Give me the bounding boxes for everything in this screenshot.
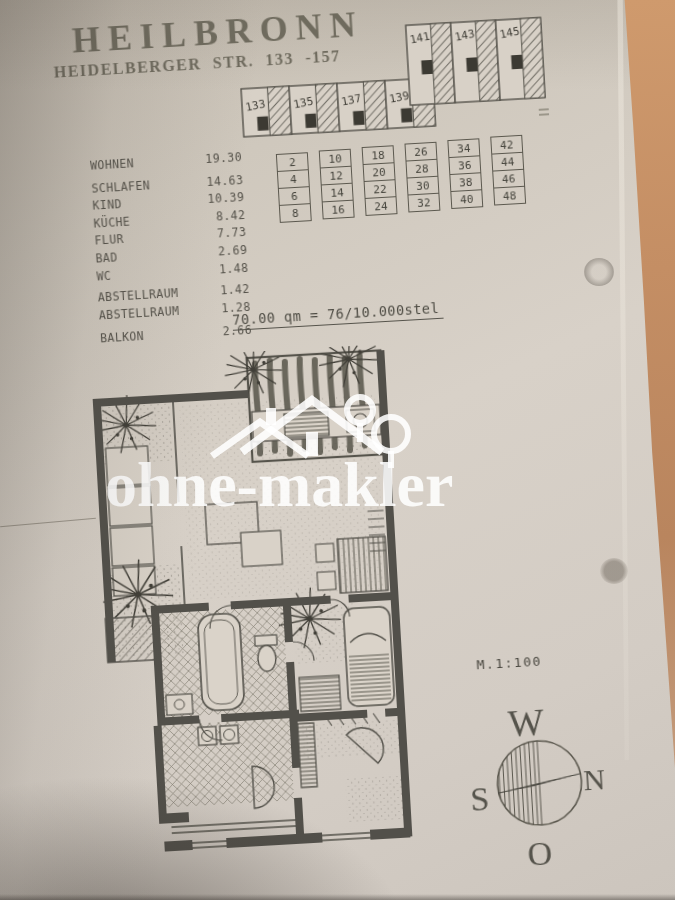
unit-number-cell: 30 bbox=[406, 177, 439, 196]
room-area-value: 7.73 bbox=[217, 225, 247, 244]
room-area-value: 10.39 bbox=[207, 190, 245, 210]
unit-number-cell: 42 bbox=[490, 135, 523, 155]
compass-west: W bbox=[507, 701, 545, 745]
unit-number-cell: 44 bbox=[491, 153, 524, 172]
room-area-value: 2.69 bbox=[218, 243, 248, 262]
unit-number-cell: 38 bbox=[449, 173, 482, 192]
unit-number-cell: 12 bbox=[320, 167, 353, 186]
chair bbox=[317, 571, 336, 590]
room-area-value: 19.30 bbox=[205, 150, 243, 170]
room-row: BALKON2.66 bbox=[100, 323, 253, 349]
kitchen bbox=[252, 404, 382, 457]
bathtub bbox=[197, 613, 244, 711]
room-label: ABSTELLRAUM bbox=[98, 304, 179, 326]
schematic-dash-marks bbox=[539, 109, 549, 115]
unit-number-cell: 6 bbox=[278, 187, 311, 206]
dining-table bbox=[337, 536, 388, 593]
room-label: WC bbox=[96, 268, 112, 286]
unit-column: 2468 bbox=[276, 152, 312, 223]
shelf bbox=[298, 723, 318, 788]
unit-number-cell: 4 bbox=[277, 170, 310, 189]
plant-icon bbox=[317, 343, 380, 389]
unit-column: 10121416 bbox=[319, 149, 355, 221]
unit-number-cell: 48 bbox=[493, 187, 526, 206]
room-row: WOHNEN19.30 bbox=[90, 150, 243, 176]
unit-column: 42444648 bbox=[490, 135, 526, 211]
unit-number-cell: 8 bbox=[279, 204, 312, 223]
unit-number-cell: 46 bbox=[492, 170, 525, 189]
unit-number-cell: 18 bbox=[362, 145, 395, 165]
unit-number-cell: 26 bbox=[404, 142, 437, 162]
room-label: SCHLAFEN bbox=[91, 178, 151, 199]
compass-north: N bbox=[582, 762, 606, 796]
washer bbox=[198, 726, 217, 745]
paper-content: HEILBRONN HEIDELBERGER STR. 133 -157 133… bbox=[0, 0, 675, 900]
unit-column: 18202224 bbox=[362, 145, 398, 218]
unit-number-cell: 28 bbox=[406, 160, 439, 179]
unit-column: 34363840 bbox=[447, 138, 483, 213]
unit-number-cell: 2 bbox=[276, 152, 309, 172]
unit-number-cell: 20 bbox=[363, 163, 396, 182]
room-area-list: WOHNEN19.30SCHLAFEN14.63KIND10.39KÜCHE8.… bbox=[90, 150, 253, 349]
unit-number-cell: 24 bbox=[365, 197, 398, 216]
unit-number-cell: 40 bbox=[450, 190, 483, 209]
compass-rose: W N S O bbox=[462, 683, 622, 873]
chair bbox=[315, 543, 334, 562]
unit-number-cell: 16 bbox=[322, 201, 355, 220]
schematic-lower-row: 133135137139 bbox=[241, 78, 435, 137]
building-schematic: 133135137139 141143145 bbox=[236, 13, 554, 145]
bathroom bbox=[159, 606, 289, 717]
room-area-value: 1.48 bbox=[219, 260, 249, 279]
stove bbox=[284, 411, 329, 437]
hallway bbox=[162, 718, 295, 807]
unit-number-cell: 32 bbox=[407, 194, 440, 213]
wardrobe bbox=[299, 675, 341, 711]
room-label: KÜCHE bbox=[93, 214, 131, 234]
room-label: KIND bbox=[92, 197, 122, 216]
room-label: BALKON bbox=[100, 329, 145, 349]
washbasin bbox=[166, 694, 193, 715]
room-area-value: 1.42 bbox=[220, 282, 250, 301]
room-label: BAD bbox=[95, 250, 118, 269]
unit-column: 26283032 bbox=[404, 142, 440, 216]
floor-plan bbox=[80, 343, 441, 866]
scale-label: M.1:100 bbox=[476, 654, 542, 673]
unit-number-cell: 34 bbox=[447, 138, 480, 158]
unit-number-cell: 14 bbox=[321, 184, 354, 203]
compass-south: S bbox=[469, 780, 490, 818]
room-label: FLUR bbox=[94, 232, 124, 251]
schematic-upper-row: 141143145 bbox=[406, 18, 545, 106]
room-label: WOHNEN bbox=[90, 156, 135, 176]
unit-number-cell: 36 bbox=[448, 156, 481, 175]
room-area-value: 8.42 bbox=[216, 208, 246, 227]
unit-number-cell: 10 bbox=[319, 149, 352, 169]
room-area-value: 14.63 bbox=[206, 173, 244, 193]
unit-number-grid: 2468101214161820222426283032343638404244… bbox=[276, 135, 527, 223]
scanned-floorplan-photo: HEILBRONN HEIDELBERGER STR. 133 -157 133… bbox=[0, 0, 675, 900]
dryer bbox=[220, 725, 239, 744]
unit-number-cell: 22 bbox=[364, 180, 397, 199]
compass-east: O bbox=[527, 834, 554, 872]
total-area-line: 70.00 qm = 76/10.000stel bbox=[232, 300, 444, 331]
